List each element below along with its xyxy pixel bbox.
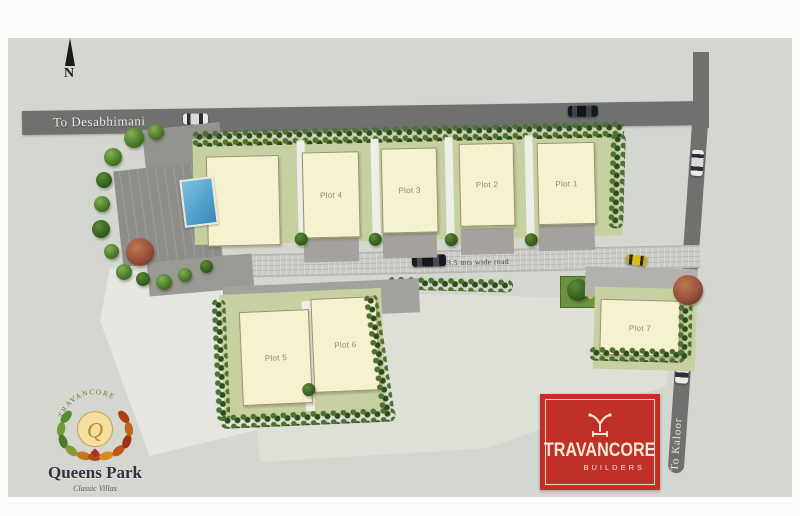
queens-park-logo: Q TRAVANCORE Queens Park Classic Villas [35,386,155,493]
plot-4-building: Plot 4 [302,151,361,238]
plot-2-building: Plot 2 [459,143,516,227]
plot-driveway [461,228,515,255]
tree-icon [200,260,213,273]
tree-icon [126,238,154,266]
top-row-plots: Plot 4 Plot 3 Plot 2 Plot 1 [192,127,631,287]
travancore-y-icon [584,412,616,438]
north-arrow-icon [65,38,75,66]
queens-park-title: Queens Park [35,463,155,483]
road-to-kaloor-upper [693,52,709,128]
plot-driveway [304,235,360,262]
tree-icon [136,272,150,286]
queens-park-monogram: Q [87,417,103,442]
map-area: To Desabhimani To Kaloor 3.5 mts wide ro… [8,38,792,497]
compass: N [58,38,88,90]
travancore-title: TRAVANCORE [544,440,656,462]
queens-park-subtitle: Classic Villas [35,484,155,493]
tree-icon [104,148,122,166]
plot-driveway [538,224,595,251]
travancore-builders-logo: TRAVANCORE BUILDERS [540,394,660,490]
plot-label: Plot 5 [265,353,288,363]
travancore-subtitle: BUILDERS [583,463,645,472]
tree-icon [94,196,110,212]
queens-park-wreath-icon: Q TRAVANCORE [35,386,155,462]
bush-icon [525,233,538,246]
road-label-kaloor: To Kaloor [669,391,689,472]
tree-icon [178,268,192,282]
plot-7-group: Plot 7 [582,266,711,387]
plot-label: Plot 4 [320,190,342,200]
tree-icon [92,220,110,238]
swimming-pool [179,176,219,228]
tree-icon [96,172,112,188]
plot-label: Plot 6 [334,340,357,350]
plot-label: Plot 3 [398,186,420,196]
tree-icon [116,264,132,280]
plot-label: Plot 7 [629,323,651,333]
plot-driveway [383,231,438,258]
hedge-row-icon [608,133,626,228]
bush-icon [369,233,382,246]
plot-label: Plot 2 [476,180,498,190]
hedge-row-icon [589,347,685,364]
car-icon [690,150,704,177]
clubhouse-building [206,155,281,247]
bottom-row-plots: Plot 5 Plot 6 [219,277,451,442]
tree-icon [124,128,144,148]
tree-icon [673,275,704,306]
car-icon [568,105,598,116]
site-plan-image: To Desabhimani To Kaloor 3.5 mts wide ro… [0,0,800,516]
tree-icon [104,244,119,259]
travancore-logo-frame: TRAVANCORE BUILDERS [545,399,655,485]
plot-label: Plot 1 [555,179,577,189]
compass-label: N [64,66,88,82]
tree-icon [148,124,164,140]
plot-1-building: Plot 1 [537,142,597,225]
tree-icon [156,274,172,290]
plot-3-building: Plot 3 [381,147,439,233]
bush-icon [445,233,458,246]
